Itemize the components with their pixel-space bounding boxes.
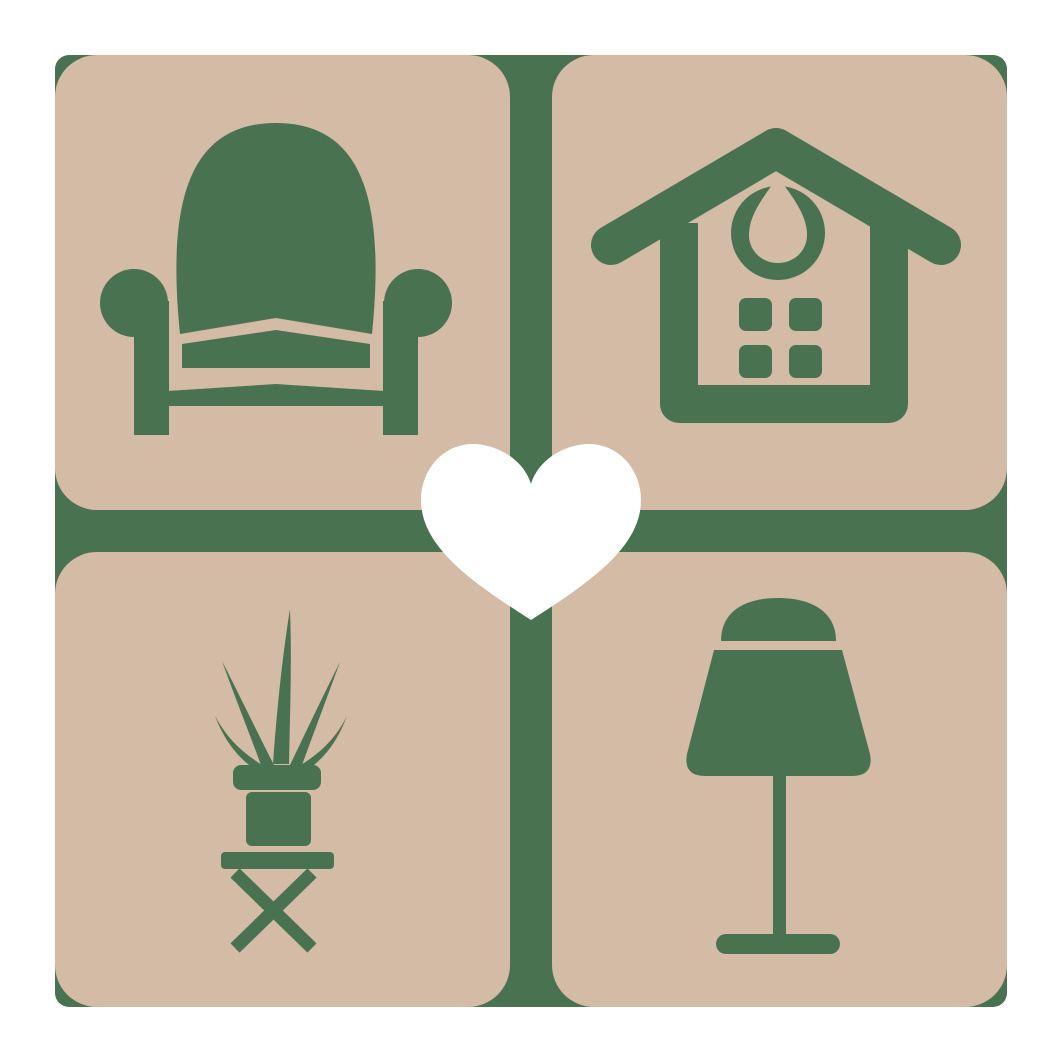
armchair-left-leg (134, 301, 169, 435)
tile-armchair (55, 55, 510, 510)
plant-pot (246, 792, 311, 846)
tile-house (552, 55, 1007, 510)
lamp-cap (721, 598, 836, 641)
stool-top (221, 852, 334, 869)
armchair-right-leg (383, 301, 418, 435)
lamp-stem (773, 776, 786, 944)
plant-blade-mid-left (222, 661, 274, 765)
logo-canvas (0, 0, 1063, 1063)
armchair-back (176, 123, 375, 334)
house-window-pane (789, 298, 822, 331)
armchair-seat-cushion (182, 330, 370, 368)
plant-blade-mid-right (290, 662, 340, 765)
house-ornament-droplet (749, 177, 807, 263)
house-window-pane (789, 345, 822, 378)
plant-blade-center (273, 609, 291, 764)
heart-icon (421, 444, 641, 622)
armchair-front-rail (152, 384, 400, 406)
house-icon (552, 55, 1007, 510)
house-window-pane (739, 345, 772, 378)
house-window-pane (739, 298, 772, 331)
plant-pot-rim (233, 765, 321, 790)
heart-shape (421, 444, 641, 620)
lamp-shade (686, 650, 870, 776)
lamp-base (716, 934, 840, 954)
armchair-icon (55, 55, 510, 510)
